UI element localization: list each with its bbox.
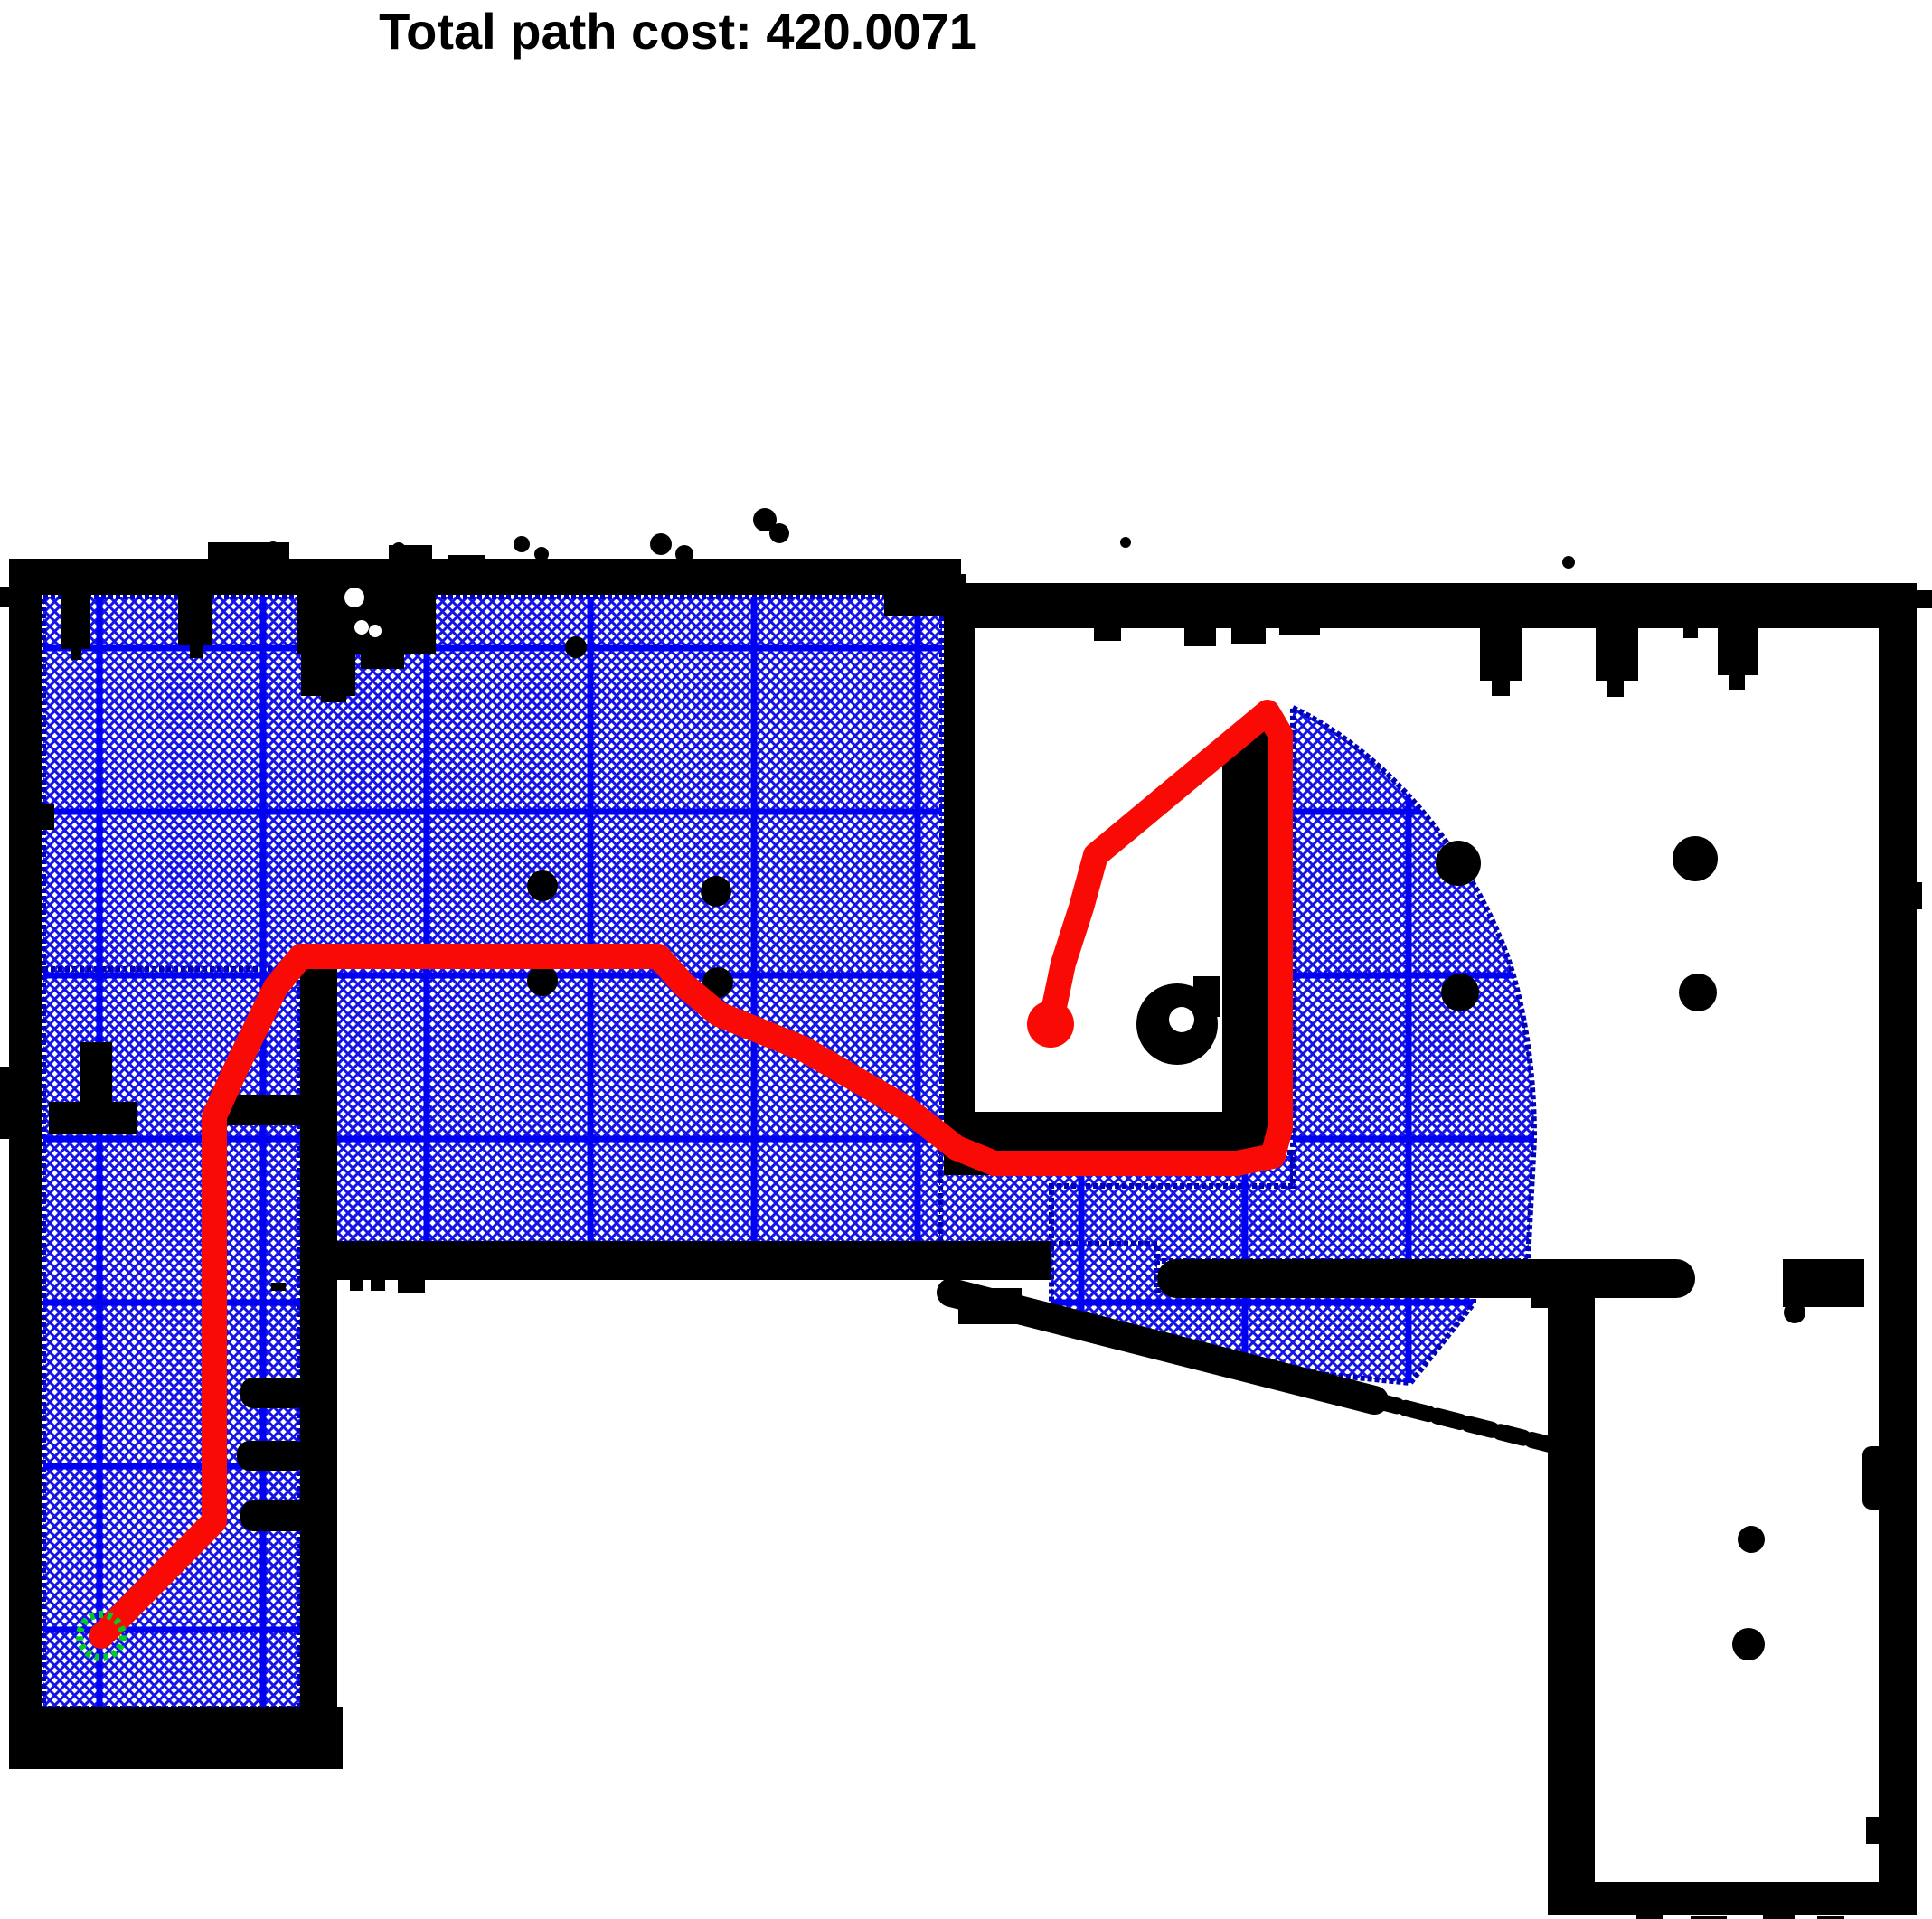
wall-segment	[1089, 1114, 1100, 1125]
wall-segment	[371, 1280, 385, 1291]
wall-segment	[1636, 1915, 1663, 1919]
wall-segment	[321, 690, 346, 702]
obstacle-dot	[675, 545, 693, 563]
wall-segment	[12, 1566, 24, 1597]
wall-segment	[1548, 1291, 1595, 1887]
wall-hole	[1169, 1007, 1194, 1032]
wall-segment	[301, 646, 355, 696]
goal-dot	[1027, 1001, 1074, 1048]
obstacle-dot	[769, 523, 789, 543]
wall-segment	[1548, 1882, 1879, 1915]
wall-segment	[1783, 1259, 1864, 1307]
wall-segment	[1184, 624, 1216, 646]
obstacle-dot	[1738, 1526, 1765, 1553]
wall-segment	[1718, 628, 1758, 675]
obstacle-dot	[266, 541, 280, 556]
wall-segment	[271, 1283, 286, 1291]
wall-diagonal	[1374, 1400, 1557, 1446]
wall-segment	[1136, 1119, 1143, 1126]
occupancy-map	[0, 0, 1932, 1919]
obstacle-dot	[1784, 1302, 1805, 1323]
wall-segment	[1596, 628, 1638, 681]
wall-segment	[1862, 1446, 1917, 1510]
wall-segment	[350, 1280, 363, 1291]
obstacle-dot	[527, 965, 558, 996]
obstacle-dot	[650, 533, 672, 555]
wall-segment	[1683, 624, 1698, 638]
wall-segment	[300, 964, 337, 1733]
wall-segment	[1231, 621, 1266, 644]
wall-segment	[42, 804, 54, 830]
wall-segment	[1607, 681, 1624, 697]
obstacle-dot	[527, 870, 558, 901]
wall-segment	[448, 555, 485, 582]
wall-segment	[1492, 678, 1510, 696]
wall-segment	[361, 633, 404, 669]
wall-segment	[944, 595, 975, 1130]
wall-segment	[1449, 583, 1485, 597]
wall-segment	[1531, 1295, 1553, 1308]
obstacle-dot	[565, 636, 587, 658]
obstacle-dot	[1441, 974, 1479, 1011]
wall-segment	[80, 1042, 112, 1102]
wall-segment	[240, 1378, 307, 1408]
wall-segment	[1879, 587, 1917, 1915]
wall-hole	[369, 625, 382, 637]
wall-segment	[1913, 590, 1932, 608]
obstacle-dot	[1120, 537, 1131, 548]
wall-segment	[1279, 622, 1320, 635]
wall-hole	[344, 588, 364, 607]
wall-segment	[1763, 1915, 1795, 1919]
path-planning-figure: Total path cost: 420.0071	[0, 0, 1932, 1919]
wall-segment	[237, 1441, 307, 1471]
obstacle-dot	[534, 547, 549, 561]
explored-region-layer	[43, 597, 1534, 1708]
wall-segment	[398, 1280, 425, 1293]
obstacle-dot	[1673, 836, 1718, 881]
obstacle-dot	[514, 536, 530, 552]
wall-segment	[406, 595, 433, 644]
wall-segment	[1157, 1259, 1695, 1298]
wall-segment	[0, 1067, 11, 1139]
obstacle-dot	[701, 876, 731, 907]
wall-segment	[1094, 621, 1121, 641]
wall-segment	[1866, 1817, 1880, 1844]
wall-segment	[14, 1227, 23, 1246]
wall-segment	[1882, 882, 1922, 909]
wall-segment	[178, 593, 212, 645]
wall-segment	[1222, 729, 1275, 1157]
wall-segment	[9, 1707, 343, 1769]
wall-segment	[1480, 628, 1522, 681]
wall-segment	[190, 645, 203, 658]
wall-segment	[1729, 673, 1745, 690]
wall-segment	[49, 1102, 137, 1134]
obstacle-dot	[1732, 1628, 1765, 1660]
obstacle-dot	[391, 542, 406, 557]
wall-segment	[61, 593, 90, 649]
obstacle-dot	[1436, 841, 1481, 886]
wall-segment	[9, 559, 961, 595]
wall-segment	[1112, 1116, 1126, 1125]
obstacle-dot	[1562, 556, 1575, 569]
wall-segment	[71, 649, 81, 660]
wall-segment	[334, 1241, 1051, 1280]
wall-segment	[1409, 584, 1434, 597]
obstacle-dot	[1679, 974, 1717, 1011]
wall-segment	[240, 1500, 309, 1531]
wall-hole	[354, 620, 369, 635]
